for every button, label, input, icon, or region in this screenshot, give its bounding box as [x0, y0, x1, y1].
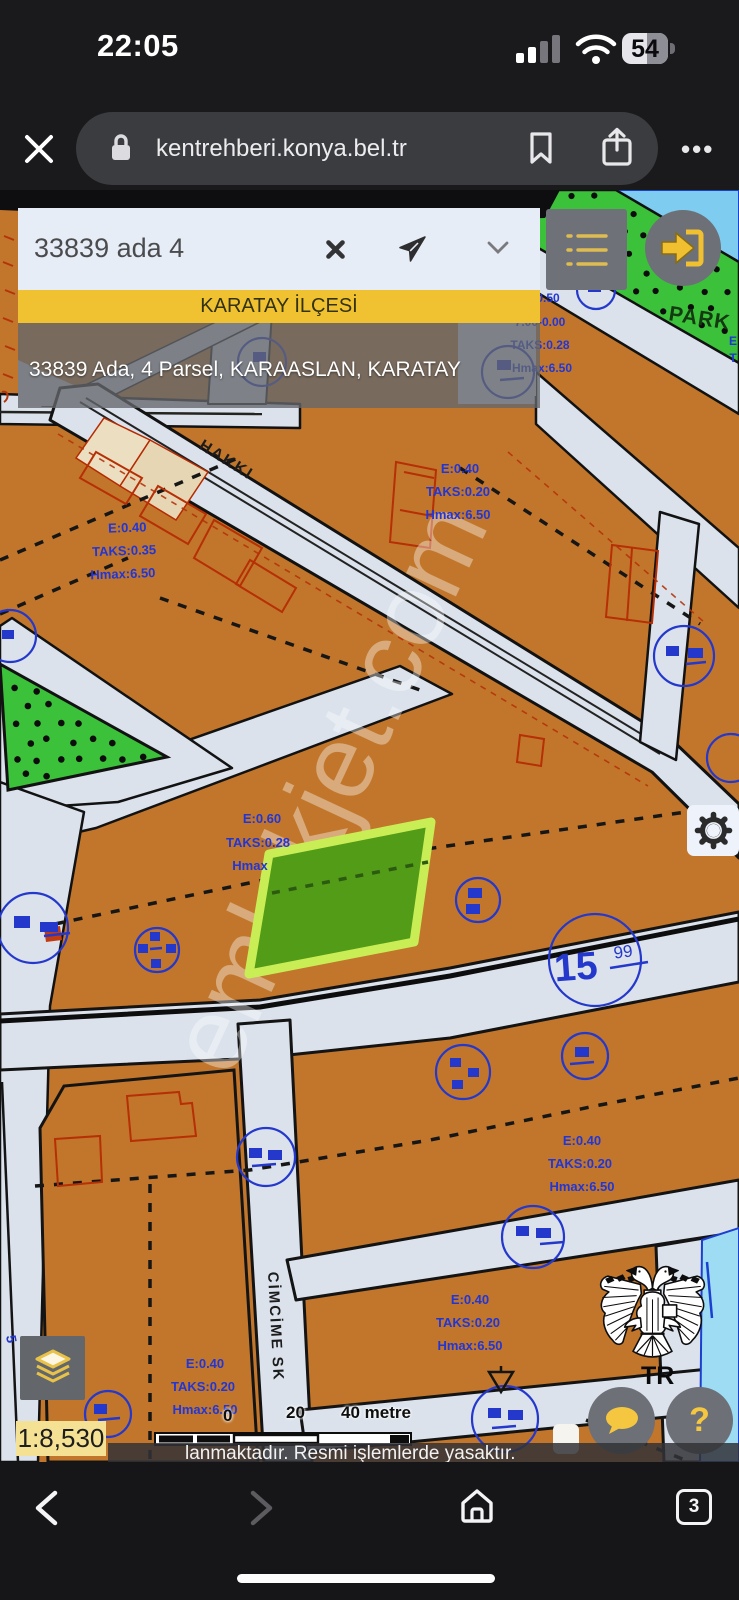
svg-text:TAKS:0.28: TAKS:0.28 [226, 835, 290, 850]
svg-text:Hmax:6.50: Hmax:6.50 [549, 1179, 614, 1194]
svg-text:TAKS:0.20: TAKS:0.20 [426, 484, 490, 499]
svg-text:E:0.40: E:0.40 [108, 519, 147, 535]
svg-text:E: E [729, 334, 737, 348]
svg-text:TAKS:0.35: TAKS:0.35 [92, 542, 157, 559]
svg-text:TAKS:0.20: TAKS:0.20 [436, 1315, 500, 1330]
svg-text:99: 99 [612, 941, 633, 962]
svg-text:Hmax:6.50: Hmax:6.50 [425, 507, 490, 522]
svg-text:E:0.40: E:0.40 [451, 1292, 489, 1307]
svg-text:T: T [729, 351, 737, 365]
svg-text:Hmax:6.50: Hmax:6.50 [90, 565, 156, 582]
svg-text:E:0.40: E:0.40 [186, 1356, 224, 1371]
svg-text:E:0.40: E:0.40 [563, 1133, 601, 1148]
svg-text:E:0.40: E:0.40 [441, 461, 479, 476]
svg-text:E:0.60: E:0.60 [243, 811, 281, 826]
svg-text:TAKS:0.20: TAKS:0.20 [171, 1379, 235, 1394]
svg-text:TAKS:0.20: TAKS:0.20 [548, 1156, 612, 1171]
svg-text:Hmax: Hmax [232, 858, 268, 873]
svg-text:Hmax:6.50: Hmax:6.50 [437, 1338, 502, 1353]
svg-text:15: 15 [553, 944, 599, 990]
